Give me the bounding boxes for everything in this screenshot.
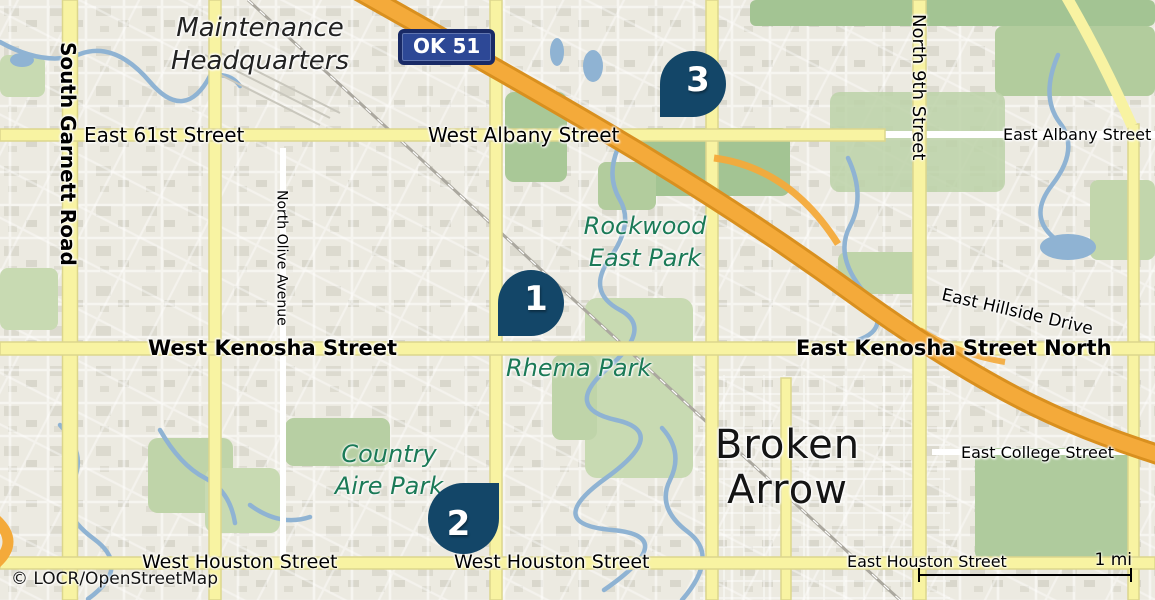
map-attribution: © LOCR/OpenStreetMap [11,569,218,589]
street-label-west-kenosha: West Kenosha Street [148,337,397,360]
street-label-south-garnett: South Garnett Road [57,42,79,266]
city-label-line1: Broken [695,423,880,468]
street-label-north-9th: North 9th Street [908,14,928,160]
scale-bar-tick-left [918,568,920,582]
route-marker-2-number: 2 [447,504,471,544]
route-marker-2[interactable]: 2 [428,483,499,554]
scale-bar-line [918,574,1132,576]
city-label-line2: Arrow [695,468,880,513]
scale-bar-label: 1 mi [1094,550,1132,570]
scale-bar: 1 mi [918,552,1132,584]
street-label-east-61st: East 61st Street [84,124,244,146]
street-label-east-college: East College Street [961,444,1114,462]
park-label-rockwood-line1: Rockwood [550,210,740,242]
street-label-west-houston-center: West Houston Street [454,552,650,573]
route-marker-1-number: 1 [524,279,548,319]
park-label-country-aire-line1: Country [320,438,458,470]
park-label-rockwood: Rockwood East Park [550,210,740,274]
street-label-north-olive: North Olive Avenue [273,190,288,326]
park-label-country-aire: Country Aire Park [320,438,458,502]
street-label-east-kenosha-north: East Kenosha Street North [796,337,1112,360]
street-label-west-albany: West Albany Street [428,124,619,146]
route-shield-ok51: OK 51 [398,29,495,65]
route-marker-1[interactable]: 1 [498,270,564,336]
maintenance-hq-line2: Headquarters [135,45,385,78]
map-canvas[interactable]: Maintenance Headquarters OK 51 East 61st… [0,0,1155,600]
maintenance-hq-line1: Maintenance [135,12,385,45]
maintenance-hq-label: Maintenance Headquarters [135,12,385,78]
route-marker-3-number: 3 [686,60,710,100]
scale-bar-tick-right [1130,568,1132,582]
street-label-east-albany: East Albany Street [1003,126,1151,144]
park-label-rhema: Rhema Park [506,352,651,384]
park-label-rockwood-line2: East Park [550,242,740,274]
city-label-broken-arrow: Broken Arrow [695,423,880,513]
route-marker-3[interactable]: 3 [660,51,726,117]
